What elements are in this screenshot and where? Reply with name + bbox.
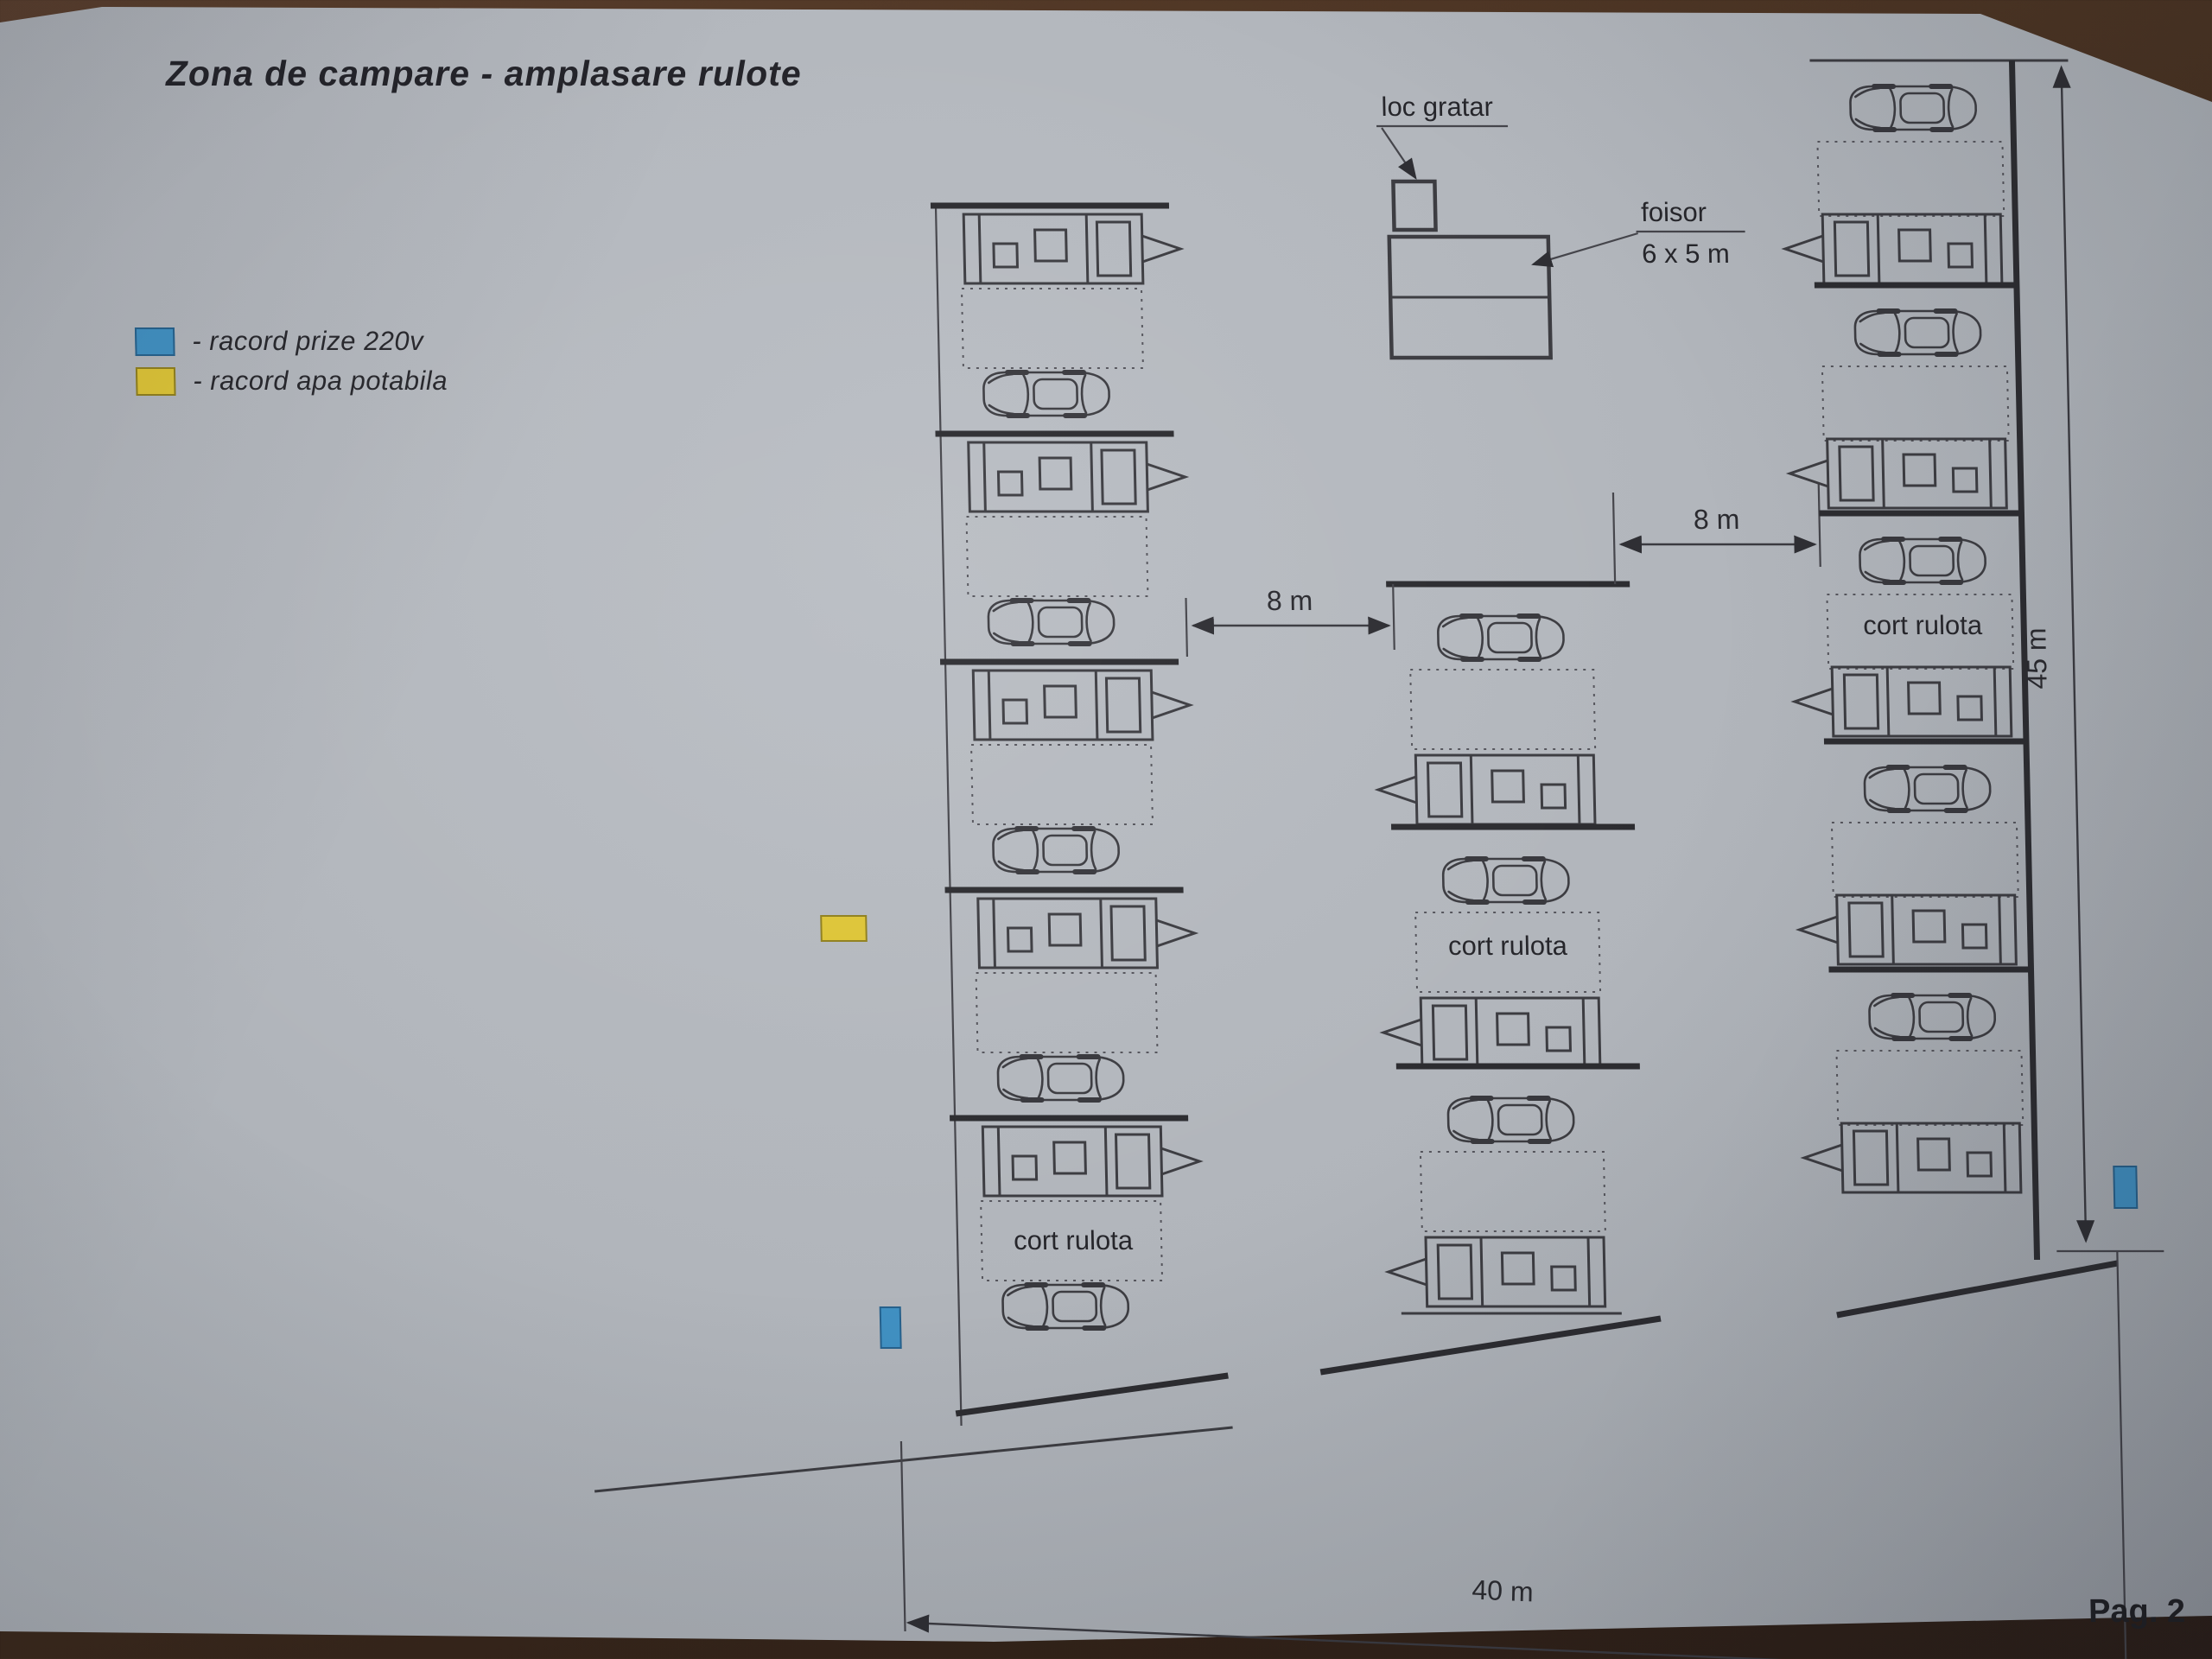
caravan-icon bbox=[963, 214, 1181, 283]
car-icon bbox=[1859, 539, 1986, 582]
caravan-icon bbox=[1388, 1237, 1605, 1306]
tent-area bbox=[971, 745, 1153, 824]
car-icon bbox=[983, 372, 1109, 416]
car-icon bbox=[988, 601, 1115, 644]
gazebo-size-label: 6 x 5 m bbox=[1642, 238, 1730, 269]
tent-area bbox=[967, 517, 1148, 596]
page-number: Pag. 2 bbox=[2088, 1593, 2186, 1630]
car-icon bbox=[998, 1057, 1124, 1100]
road-edges bbox=[590, 1263, 2123, 1491]
tent-area bbox=[976, 973, 1158, 1052]
tent-area bbox=[1832, 823, 2018, 897]
svg-text:45 m: 45 m bbox=[2020, 627, 2052, 689]
svg-text:8 m: 8 m bbox=[1694, 504, 1740, 535]
dimension-8m-left: 8 m bbox=[1192, 585, 1389, 626]
car-icon bbox=[1443, 859, 1569, 902]
car-icon bbox=[1855, 311, 1981, 354]
caravan-icon bbox=[969, 442, 1186, 512]
car-icon bbox=[1850, 86, 1976, 130]
caravan-icon bbox=[1803, 1123, 2021, 1192]
caravan-icon bbox=[978, 899, 1196, 968]
tent-area bbox=[1836, 1051, 2023, 1125]
camping-spots: cort rulotacort rulotacort rulota bbox=[804, 86, 2140, 1348]
dimension-8m-right: 8 m bbox=[1620, 504, 1815, 544]
tent-area bbox=[1410, 670, 1595, 749]
grill-square bbox=[1393, 181, 1435, 230]
caravan-icon bbox=[1794, 667, 2012, 736]
car-icon bbox=[1438, 616, 1564, 659]
svg-text:8 m: 8 m bbox=[1267, 585, 1313, 616]
car-icon bbox=[993, 829, 1119, 872]
caravan-icon bbox=[1784, 214, 2002, 283]
tent-area bbox=[1822, 366, 2009, 441]
grill-label: loc gratar bbox=[1381, 92, 1493, 122]
tent-area bbox=[1817, 142, 2004, 216]
tent-label: cort rulota bbox=[1014, 1225, 1134, 1255]
caravan-icon bbox=[1799, 895, 2017, 964]
caravan-icon bbox=[1789, 439, 2007, 508]
tent-label: cort rulota bbox=[1448, 931, 1568, 961]
tent-area bbox=[962, 289, 1143, 368]
caravan-icon bbox=[1377, 755, 1595, 824]
left-column-edge bbox=[936, 204, 962, 1426]
car-icon bbox=[1002, 1285, 1128, 1328]
plan-drawing: loc gratar foisor 6 x 5 m 8 m 8 m 45 m bbox=[0, 0, 2212, 1659]
grill-annotation: loc gratar bbox=[1376, 92, 1510, 230]
gazebo-annotation: foisor 6 x 5 m bbox=[1389, 197, 1748, 358]
car-icon bbox=[1448, 1098, 1574, 1141]
grill-leader-line bbox=[1382, 128, 1415, 178]
tent-label: cort rulota bbox=[1863, 610, 1983, 640]
tent-area bbox=[1421, 1152, 1605, 1231]
water-tap-marker bbox=[821, 916, 867, 941]
caravan-icon bbox=[973, 671, 1191, 740]
car-icon bbox=[1869, 995, 1995, 1039]
car-icon bbox=[1865, 767, 1991, 810]
gazebo-label: foisor bbox=[1641, 197, 1707, 227]
caravan-icon bbox=[982, 1127, 1200, 1196]
power-outlet-marker bbox=[2113, 1166, 2137, 1208]
svg-text:40 m: 40 m bbox=[1471, 1574, 1534, 1608]
site-plan: Zona de campare - amplasare rulote - rac… bbox=[0, 0, 2212, 1659]
power-outlet-marker bbox=[880, 1307, 901, 1348]
caravan-icon bbox=[1382, 998, 1600, 1067]
